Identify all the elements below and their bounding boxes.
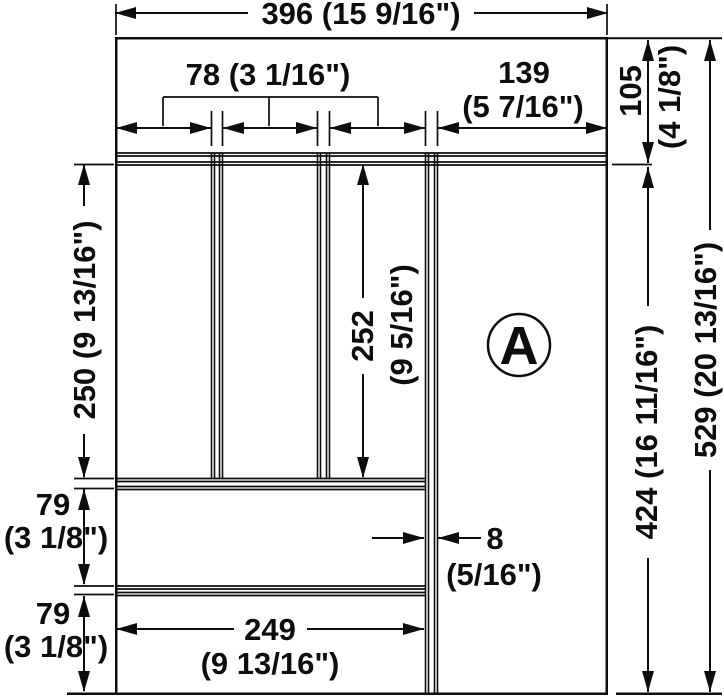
- dim-top-section-mm-label: 105: [613, 65, 648, 117]
- arrowhead: [78, 164, 90, 185]
- vertical-divider-1-lines: [212, 153, 223, 479]
- part-label-badge: A: [488, 314, 550, 376]
- vertical-divider-3-full-height: [426, 153, 438, 693]
- arrowhead: [78, 457, 90, 478]
- arrowhead: [116, 623, 137, 635]
- arrowhead: [190, 122, 211, 134]
- drawer-insert-dimension-drawing: 396 (15 9/16") 78 (3 1/16") 139 (5 7/16"…: [0, 0, 724, 700]
- arrowhead: [115, 7, 136, 19]
- dim-bottom-width-in-label: (9 13/16"): [201, 646, 340, 681]
- dim-divider-thickness-in-label: (5/16"): [446, 557, 542, 592]
- arrowhead: [116, 122, 137, 134]
- top-rail-lines: [116, 153, 607, 165]
- vertical-divider-3-lines: [426, 153, 438, 693]
- arrowhead: [78, 596, 90, 617]
- dim-right-compartment-mm-label: 139: [498, 55, 550, 90]
- arrowhead: [78, 671, 90, 692]
- dim-row1-mm-label: 79: [36, 487, 70, 522]
- arrowhead: [438, 532, 459, 544]
- horizontal-divider-2: [116, 586, 426, 596]
- arrowhead: [587, 7, 608, 19]
- horizontal-divider-2-lines: [116, 586, 426, 596]
- vertical-divider-2: [318, 153, 330, 479]
- dim-right-inner-height-label: 424 (16 11/16"): [629, 325, 664, 540]
- dim-78-bracket: [163, 97, 378, 126]
- arrowhead: [78, 489, 90, 510]
- vertical-divider-1: [212, 153, 223, 479]
- arrowhead: [78, 564, 90, 585]
- arrowhead: [357, 164, 369, 185]
- arrowhead: [403, 623, 424, 635]
- dim-top-section-in-label: (4 1/8"): [652, 45, 687, 149]
- dim-right-compartment-in-label: (5 7/16"): [462, 89, 584, 124]
- dim-divider-thickness-mm-label: 8: [486, 521, 503, 556]
- arrowhead: [704, 671, 716, 692]
- dim-bottom-width-mm-label: 249: [244, 612, 296, 647]
- horizontal-divider-1-lines: [116, 479, 426, 490]
- vertical-divider-2-lines: [318, 153, 330, 479]
- dim-compartment-width-label: 78 (3 1/16"): [186, 57, 351, 92]
- arrowhead: [404, 122, 425, 134]
- arrowhead: [704, 40, 716, 61]
- part-label-letter: A: [500, 316, 539, 376]
- arrowhead: [357, 457, 369, 478]
- arrowhead: [438, 122, 459, 134]
- drawing-svg: 396 (15 9/16") 78 (3 1/16") 139 (5 7/16"…: [0, 0, 724, 700]
- arrowhead: [296, 122, 317, 134]
- dim-row1-in-label: (3 1/8"): [4, 520, 108, 555]
- dim-total-width-label: 396 (15 9/16"): [261, 0, 460, 31]
- horizontal-divider-1: [116, 479, 426, 490]
- dim-row2-mm-label: 79: [36, 596, 70, 631]
- dim-center-height-mm-label: 252: [345, 310, 380, 362]
- top-rail: [116, 153, 607, 165]
- dim-center-height-in-label: (9 5/16"): [384, 264, 419, 386]
- arrowhead: [642, 671, 654, 692]
- dim-upper-left-height-label: 250 (9 13/16"): [67, 220, 102, 419]
- arrowhead: [642, 167, 654, 188]
- dim-total-height-label: 529 (20 13/16"): [688, 242, 723, 458]
- arrowhead: [586, 122, 607, 134]
- arrowhead: [330, 122, 351, 134]
- arrowhead: [403, 532, 424, 544]
- dim-row2-in-label: (3 1/8"): [4, 629, 108, 664]
- arrowhead: [223, 122, 244, 134]
